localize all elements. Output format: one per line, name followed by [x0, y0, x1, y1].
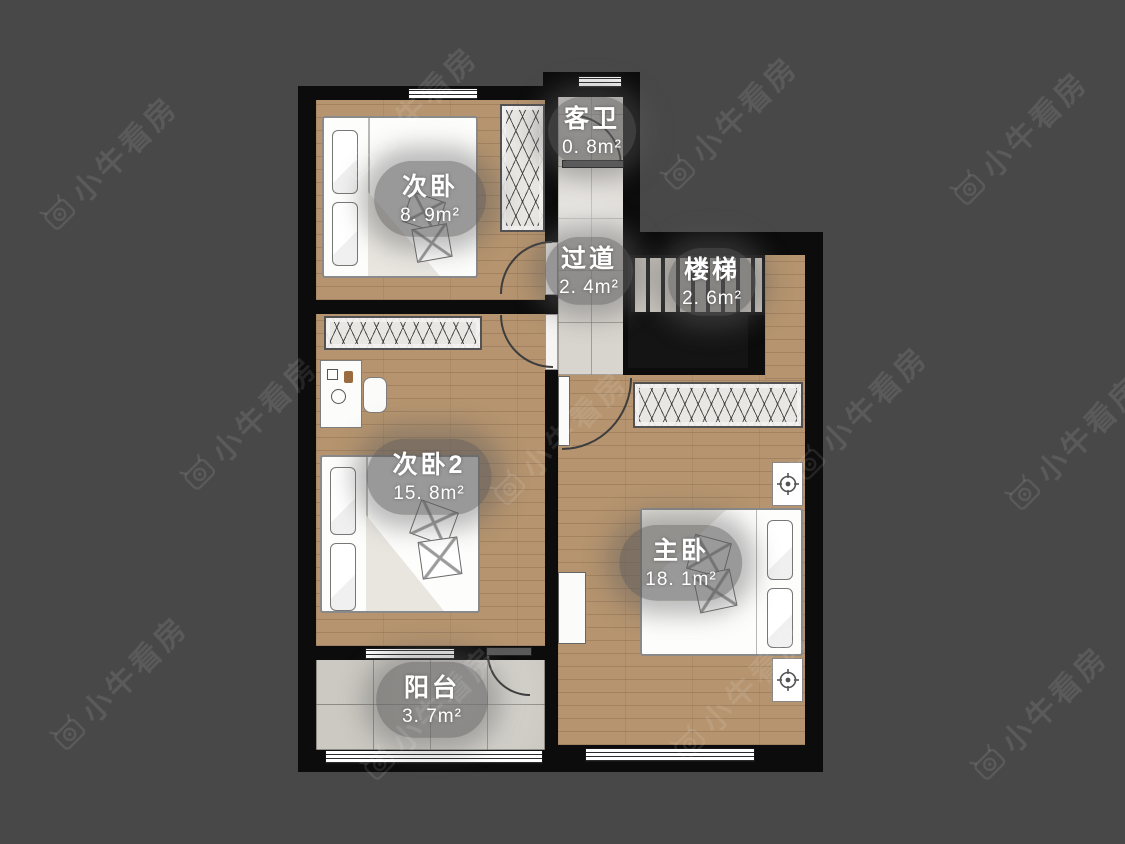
xiaoniu-logo-icon	[175, 450, 220, 495]
room-name: 客卫	[562, 103, 622, 136]
room-name: 楼梯	[682, 254, 742, 287]
watermark-text: 小牛看房	[809, 334, 936, 461]
floorplan-canvas: 次卧 8. 9m² 客卫 0. 8m² 过道 2. 4m² 楼梯 2. 6m² …	[0, 0, 1125, 844]
window-bedroom2-balcony-divider	[365, 648, 455, 660]
xiaoniu-logo-icon	[35, 190, 80, 235]
room-area: 15. 8m²	[393, 481, 466, 505]
room-area: 2. 4m²	[559, 275, 619, 299]
room-area: 2. 6m²	[682, 286, 742, 310]
room-area: 18. 1m²	[645, 567, 716, 591]
nightstand	[772, 658, 803, 702]
watermark-text: 小牛看房	[969, 59, 1096, 186]
room-label-hallway: 过道 2. 4m²	[545, 237, 633, 305]
pillow	[330, 467, 356, 535]
watermark: 小牛看房	[940, 59, 1096, 215]
room-label-master-bedroom: 主卧 18. 1m²	[619, 525, 742, 601]
under-stairs-void	[628, 315, 748, 368]
floor-stair-landing	[765, 255, 805, 379]
watermark: 小牛看房	[30, 84, 186, 240]
watermark-text: 小牛看房	[679, 44, 806, 171]
room-label-guest-bathroom: 客卫 0. 8m²	[548, 97, 636, 165]
cushion	[418, 536, 463, 579]
room-name: 阳台	[402, 672, 462, 705]
nightstand	[772, 462, 803, 506]
room-area: 3. 7m²	[402, 704, 462, 728]
bed-platform-line	[756, 510, 758, 654]
pillow	[767, 588, 793, 648]
xiaoniu-logo-icon	[45, 710, 90, 755]
xiaoniu-logo-icon	[655, 150, 700, 195]
room-area: 8. 9m²	[400, 203, 460, 227]
room-name: 次卧2	[393, 449, 466, 482]
xiaoniu-logo-icon	[1000, 470, 1045, 515]
door-leaf-master-bedroom	[558, 376, 570, 446]
lamp-icon	[776, 668, 800, 692]
wardrobe-secondary-bedroom	[500, 104, 545, 232]
room-name: 过道	[559, 243, 619, 276]
window-balcony-bottom	[325, 750, 543, 764]
door-leaf-balcony	[486, 647, 532, 656]
xiaoniu-logo-icon	[945, 165, 990, 210]
window-guest-bathroom-top	[578, 76, 622, 88]
watermark: 小牛看房	[650, 44, 806, 200]
room-name: 次卧	[400, 171, 460, 204]
wardrobe-master-bedroom	[633, 382, 803, 428]
watermark-text: 小牛看房	[1024, 364, 1125, 491]
desk-bedroom2	[320, 360, 362, 428]
xiaoniu-logo-icon	[965, 740, 1010, 785]
watermark: 小牛看房	[960, 634, 1116, 790]
room-label-secondary-bedroom: 次卧 8. 9m²	[374, 161, 486, 237]
watermark: 小牛看房	[995, 364, 1125, 520]
pillow	[767, 520, 793, 580]
room-label-balcony: 阳台 3. 7m²	[376, 662, 488, 738]
watermark-text: 小牛看房	[59, 84, 186, 211]
pillow	[332, 202, 358, 266]
room-label-stairs: 楼梯 2. 6m²	[668, 248, 756, 316]
window-master-bottom	[585, 748, 755, 762]
lamp-icon	[776, 472, 800, 496]
window-secondary-bedroom-top	[408, 88, 478, 100]
clothes-rack-bedroom2	[324, 316, 482, 350]
pillow	[330, 543, 356, 611]
room-area: 0. 8m²	[562, 135, 622, 159]
watermark-text: 小牛看房	[989, 634, 1116, 761]
chair-bedroom2	[363, 377, 387, 413]
room-label-secondary-bedroom2: 次卧2 15. 8m²	[367, 439, 492, 515]
watermark-text: 小牛看房	[69, 604, 196, 731]
cabinet-master-bedroom	[558, 572, 586, 644]
room-name: 主卧	[645, 535, 716, 568]
watermark: 小牛看房	[40, 604, 196, 760]
pillow	[332, 130, 358, 194]
